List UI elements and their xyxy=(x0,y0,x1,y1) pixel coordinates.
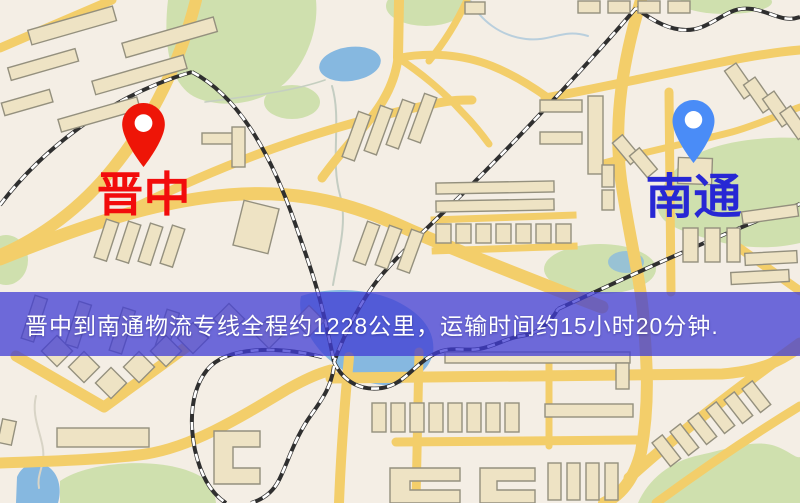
blue-location-pin-icon xyxy=(667,100,720,163)
destination-label: 南通 xyxy=(645,174,741,222)
map-screenshot: 晋中到南通物流专线全程约1228公里，运输时间约15小时20分钟. 晋中 南通 xyxy=(0,0,800,503)
red-location-pin-icon xyxy=(117,103,170,167)
route-info-banner: 晋中到南通物流专线全程约1228公里，运输时间约15小时20分钟. xyxy=(0,292,800,356)
origin-marker[interactable]: 晋中 xyxy=(117,103,170,167)
destination-marker[interactable]: 南通 xyxy=(667,100,720,163)
map-canvas xyxy=(0,0,800,503)
origin-label: 晋中 xyxy=(97,173,191,220)
route-info-text: 晋中到南通物流专线全程约1228公里，运输时间约15小时20分钟. xyxy=(0,307,719,341)
